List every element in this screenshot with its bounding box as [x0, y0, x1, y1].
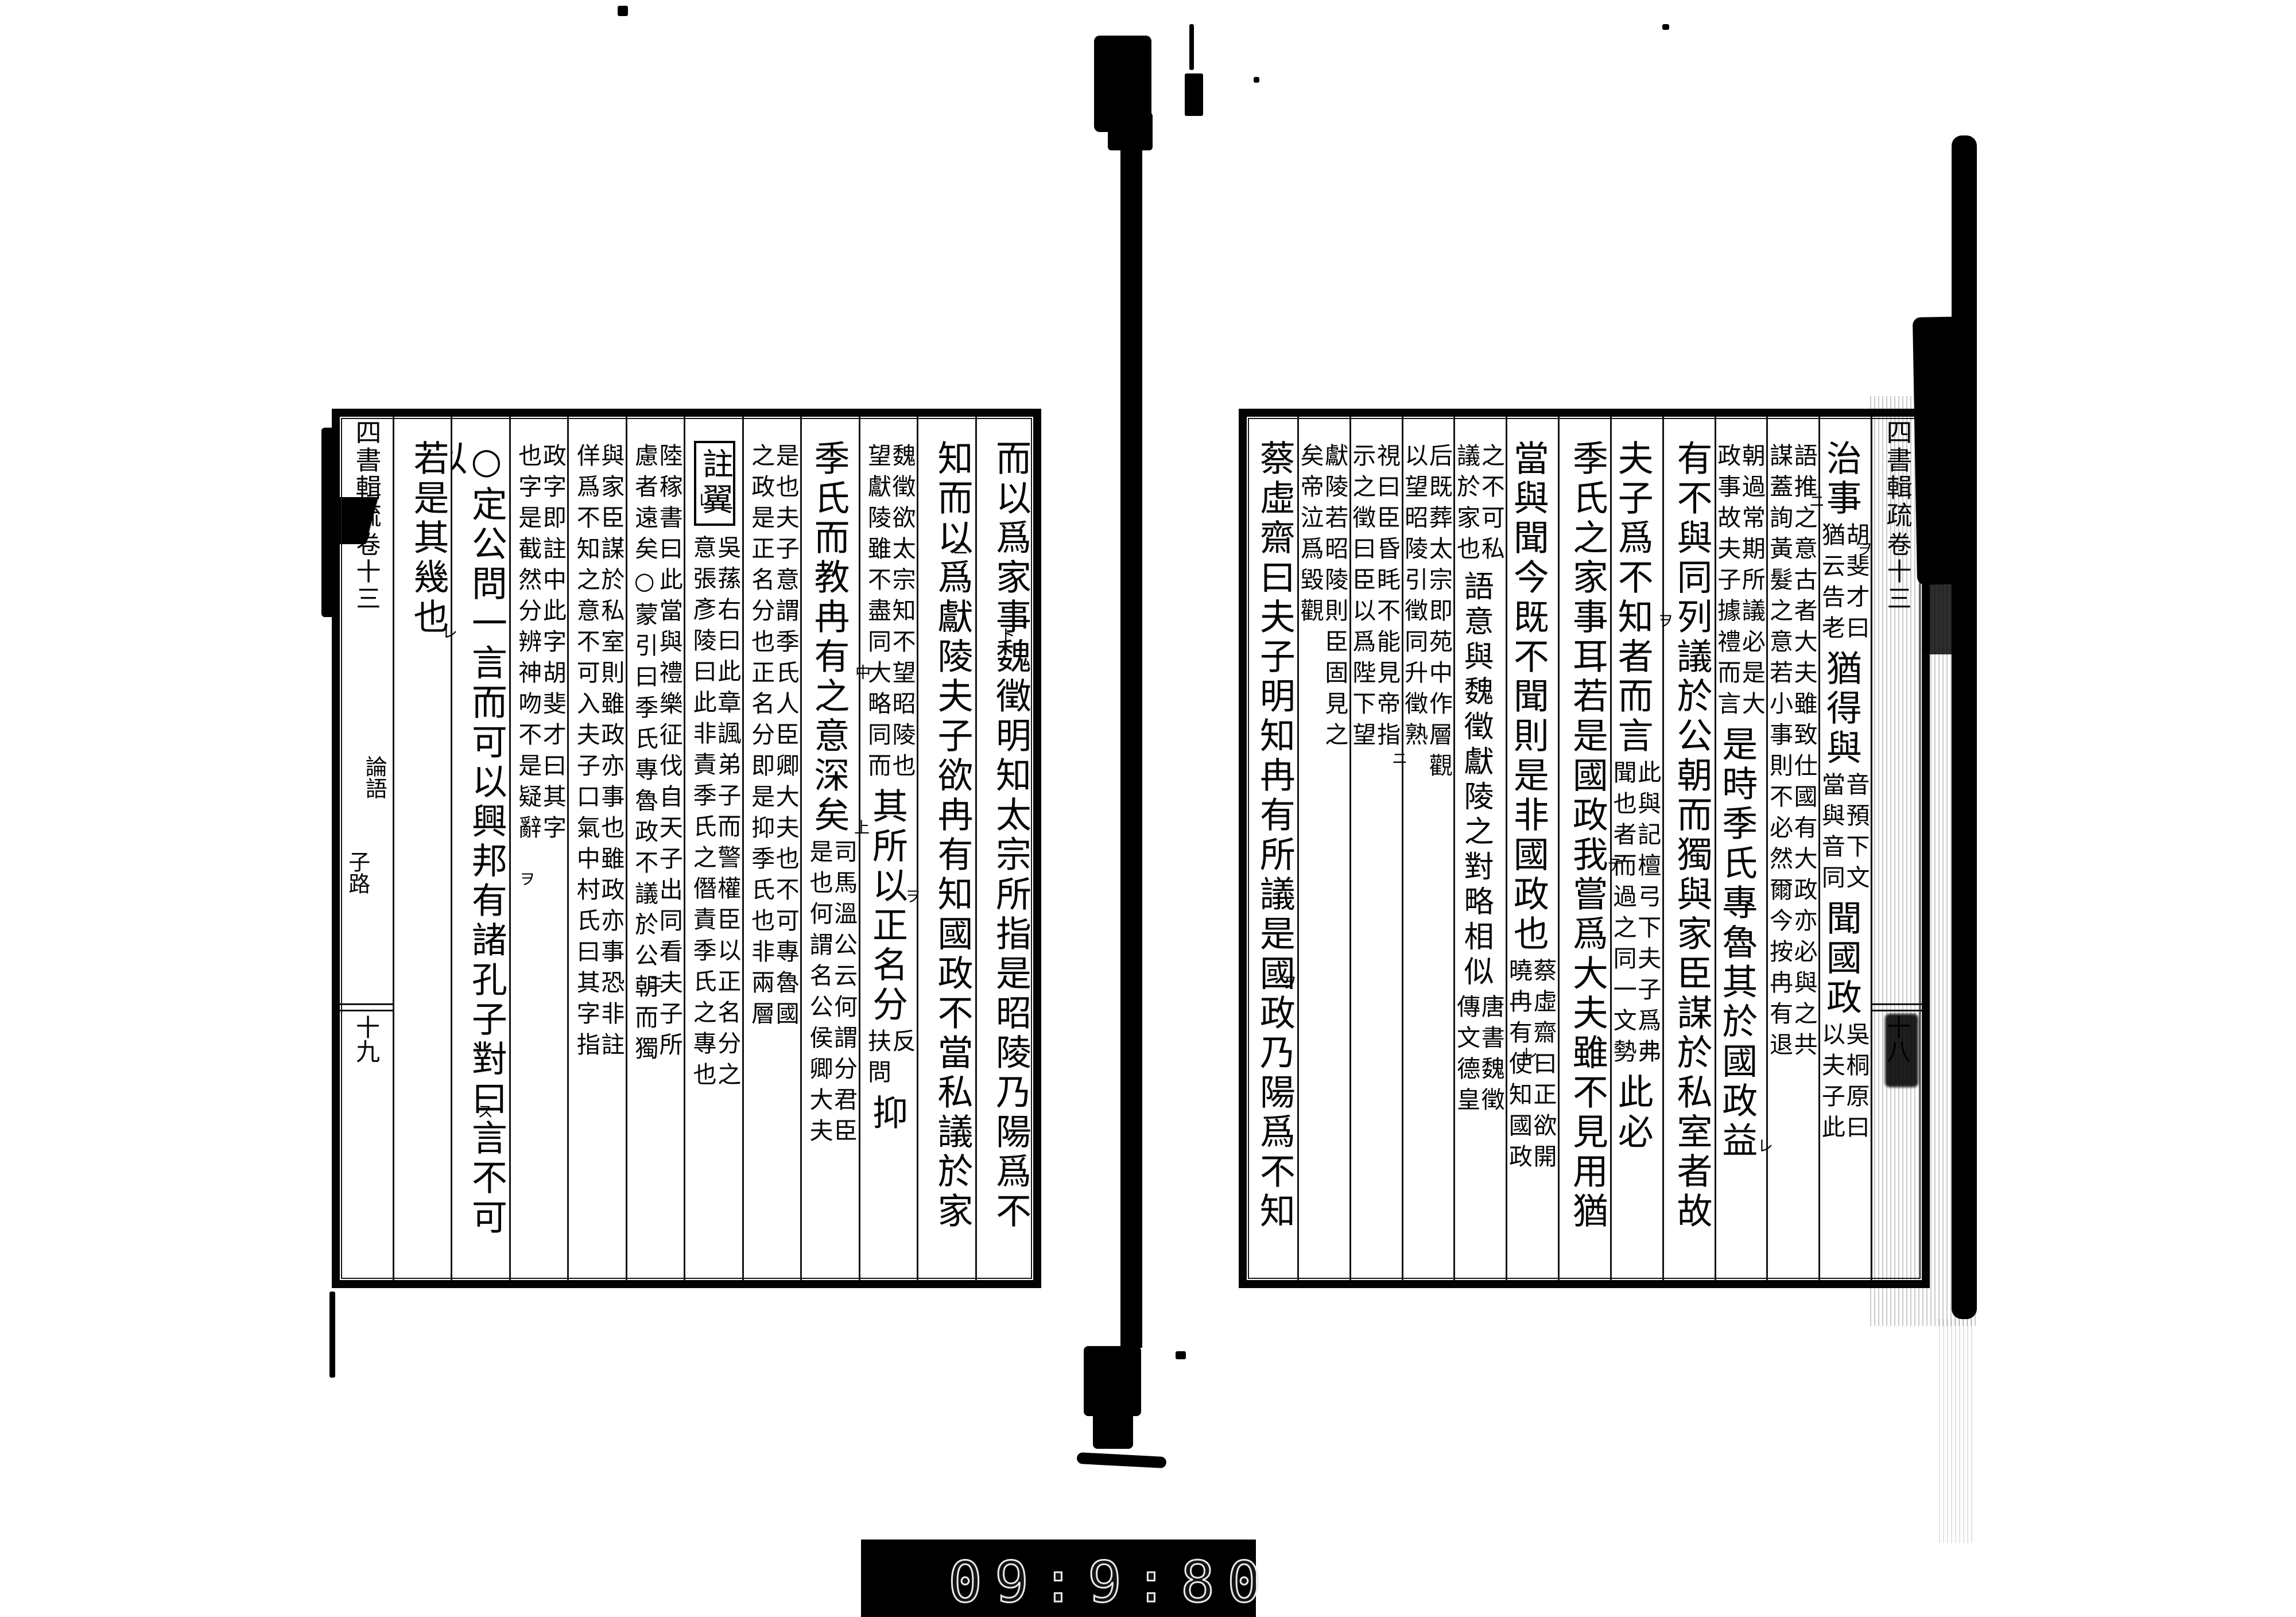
interlinear-note: 此與記檀弓下夫子爲弗聞也者而過之同一文勢	[1610, 760, 1659, 1070]
column-text: 是時季氏專魯其於國政益	[1716, 726, 1758, 1161]
column-text: 季氏而教冉有之意深矣	[808, 440, 850, 836]
interlinear-note: 音預下文當與音同	[1819, 772, 1868, 896]
column-text: 語意與魏徵獻陵之對略相似	[1459, 571, 1493, 991]
text-column: 視曰臣昏眊不能見帝指示之徵曰臣以爲陛下望	[1349, 417, 1402, 1280]
page-right: 治事胡斐才曰猶云告老猶得與音預下文當與音同聞國政吳桐原曰以夫子此語推之意古者大夫…	[1239, 409, 1930, 1288]
column-text: 聞國政	[1820, 899, 1862, 1018]
column-text: 有不與同列議於公朝而獨與家臣謀於私室者故	[1671, 440, 1713, 1232]
kunten-mark: ニ	[1809, 489, 1825, 511]
ink-speck	[1662, 24, 1669, 30]
kunten-mark: レ	[442, 620, 457, 642]
scan-streaks	[1870, 396, 1978, 1326]
page-right-columns: 治事胡斐才曰猶云告老猶得與音預下文當與音同聞國政吳桐原曰以夫子此語推之意古者大夫…	[1247, 417, 1871, 1280]
interlinear-note: 是也夫子意謂季氏人臣卿大夫也不可專魯國之政是正名分也正名分即是抑季氏也非兩層	[748, 443, 797, 1032]
margin-strip-left: 四書輯疏 卷十三 論語 子路 十九	[340, 417, 394, 1280]
page-number-left: 十九	[349, 1015, 384, 1063]
interlinear-note: 司馬溫公云何謂分君臣是也何謂名公侯卿大夫	[806, 839, 855, 1149]
text-column: 后既葬太宗即苑中作層觀以望昭陵引徵同升徵熟	[1402, 417, 1454, 1280]
column-text: 季氏之家事耳若是國政我嘗爲大夫雖不見用猶	[1566, 440, 1608, 1232]
kunten-mark: ニ	[953, 537, 968, 559]
column-text: 其所以正名分	[866, 788, 908, 1025]
interlinear-note: 吳桐原曰以夫子此	[1819, 1022, 1868, 1146]
kunten-mark: テ	[1607, 852, 1623, 875]
chapter-label: 子路	[342, 851, 374, 894]
kunten-mark: ヲ	[1281, 970, 1297, 992]
page-number-rule-left	[340, 1003, 393, 1011]
text-column: 是也夫子意謂季氏人臣卿大夫也不可專魯國之政是正名分也正名分即是抑季氏也非兩層	[742, 417, 800, 1280]
column-text: 當與聞今既不聞則是非國政也	[1507, 440, 1549, 955]
text-column: 陸稼書曰此當與禮樂征伐自天子出同看夫子所慮者遠矣○蒙引曰季氏專魯政不議於公朝而獨	[626, 417, 684, 1280]
interlinear-note: 反扶問	[865, 1029, 914, 1091]
text-column: 而以爲家事魏徵明知太宗所指是昭陵乃陽爲不	[975, 417, 1033, 1280]
column-text: 夫子爲不知者而言	[1612, 440, 1654, 757]
interlinear-note: 與家臣謀於私室則雖政亦事也雖政亦事恐非註佯爲不知之意不可入夫子口氣中村氏曰其字指	[574, 443, 623, 1063]
text-column: 政字即註中此字胡斐才曰其字也字是截然分辨神吻不是疑辭	[509, 417, 567, 1280]
binding-ink-blob-bottom	[1084, 1346, 1141, 1416]
kunten-mark: ヲ	[1658, 608, 1673, 631]
column-text: 猶得與	[1820, 650, 1862, 769]
ink-speck	[618, 6, 628, 16]
kunten-mark: レ	[1758, 1134, 1773, 1156]
ink-speck	[329, 1292, 335, 1378]
text-column: 與家臣謀於私室則雖政亦事也雖政亦事恐非註佯爲不知之意不可入夫子口氣中村氏曰其字指	[567, 417, 625, 1280]
text-column: 夫子爲不知者而言此與記檀弓下夫子爲弗聞也者而過之同一文勢此必	[1610, 417, 1662, 1280]
binding-bar	[1120, 122, 1142, 1348]
ink-speck	[1176, 1351, 1186, 1359]
text-column: 有不與同列議於公朝而獨與家臣謀於私室者故	[1662, 417, 1715, 1280]
kunten-mark: ニ	[1392, 746, 1407, 769]
text-column: 註翼吳蓀右曰此章諷弟子而警權臣以正名分之意張彥陵曰此非責季氏之僭責季氏之專也	[684, 417, 742, 1280]
ink-speck	[1189, 24, 1194, 70]
ink-speck	[1254, 77, 1259, 83]
binding-ink-smear	[1077, 1452, 1167, 1468]
interlinear-note: 獻陵若昭陵則臣固見之矣帝泣爲毀觀	[1297, 443, 1346, 753]
interlinear-note: 之不可私議於家也	[1454, 443, 1503, 567]
kunten-mark: 上	[854, 815, 870, 837]
kunten-mark: 中	[855, 660, 871, 683]
interlinear-note: 語推之意古者大夫雖致仕國有大政亦必與之共謀蓋詢黃髮之意若小事則不必然爾今按冉有退	[1767, 443, 1816, 1063]
column-text: 蔡虛齋曰夫子明知冉有所議是國政乃陽爲不知	[1254, 440, 1296, 1232]
column-text: 而以爲家事魏徵明知太宗所指是昭陵乃陽爲不	[990, 440, 1031, 1232]
interlinear-note: 蔡虛齋曰正欲開曉冉有使知國政	[1506, 958, 1555, 1175]
kunten-mark: ヲ	[905, 884, 921, 906]
interlinear-note: 后既葬太宗即苑中作層觀以望昭陵引徵同升徵熟	[1402, 443, 1450, 784]
kunten-mark: ス	[478, 1099, 493, 1122]
binding-ink-blob-bottom2	[1093, 1411, 1133, 1449]
text-column: 季氏而教冉有之意深矣司馬溫公云何謂分君臣是也何謂名公侯卿大夫	[800, 417, 858, 1280]
column-text: 治事	[1820, 440, 1862, 519]
book-scan-spread: 治事胡斐才曰猶云告老猶得與音預下文當與音同聞國政吳桐原曰以夫子此語推之意古者大夫…	[0, 0, 2296, 1617]
text-column: ○定公問一言而可以興邦有諸孔子對曰言不可以	[451, 417, 509, 1280]
column-text: 此必	[1612, 1073, 1654, 1153]
column-text: 若是其幾也	[407, 440, 449, 638]
text-column: 獻陵若昭陵則臣固見之矣帝泣爲毀觀	[1297, 417, 1349, 1280]
column-text: 抑	[866, 1094, 908, 1134]
page-left: 而以爲家事魏徵明知太宗所指是昭陵乃陽爲不知而以爲獻陵夫子欲冉有知國政不當私議於家…	[332, 409, 1041, 1288]
text-column: 季氏之家事耳若是國政我嘗爲大夫雖不見用猶	[1558, 417, 1610, 1280]
microfilm-frame-counter: 09:9:80	[948, 1550, 1274, 1615]
interlinear-note: 政字即註中此字胡斐才曰其字也字是截然分辨神吻不是疑辭	[515, 443, 564, 846]
kunten-mark: ニ	[649, 970, 664, 992]
text-column: 當與聞今既不聞則是非國政也蔡虛齋曰正欲開曉冉有使知國政	[1506, 417, 1558, 1280]
text-column: 蔡虛齋曰夫子明知冉有所議是國政乃陽爲不知	[1247, 417, 1297, 1280]
kunten-mark: レ	[697, 488, 713, 510]
volume-label-left: 卷十三	[348, 532, 384, 612]
interlinear-note: 吳蓀右曰此章諷弟子而警權臣以正名分之意張彥陵曰此非責季氏之僭責季氏之專也	[690, 535, 739, 1093]
section-header-box: 註翼	[694, 441, 735, 526]
page-left-columns: 而以爲家事魏徵明知太宗所指是昭陵乃陽爲不知而以爲獻陵夫子欲冉有知國政不當私議於家…	[394, 417, 1033, 1280]
subject-label: 論語	[359, 755, 390, 799]
text-column: 若是其幾也	[394, 417, 451, 1280]
interlinear-note: 視曰臣昏眊不能見帝指示之徵曰臣以爲陛下望	[1349, 443, 1398, 753]
kunten-mark: ト	[1000, 623, 1015, 645]
scan-streaks-lower	[1939, 1319, 1975, 1543]
interlinear-note: 唐書魏徵傳文德皇	[1454, 994, 1503, 1118]
kunten-mark: ヲ	[1857, 537, 1872, 559]
interlinear-note: 魏徵欲太宗知不望昭陵也望獻陵雖不盡同大略同而	[865, 443, 914, 784]
text-column: 魏徵欲太宗知不望昭陵也望獻陵雖不盡同大略同而其所以正名分反扶問抑	[859, 417, 917, 1280]
left-edge-ink-blob	[321, 428, 338, 617]
ink-speck	[1185, 73, 1203, 116]
text-column: 之不可私議於家也語意與魏徵獻陵之對略相似唐書魏徵傳文德皇	[1453, 417, 1506, 1280]
kunten-mark: ヲ	[519, 867, 535, 889]
kunten-mark: レ	[1522, 1042, 1538, 1064]
text-column: 語推之意古者大夫雖致仕國有大政亦必與之共謀蓋詢黃髮之意若小事則不必然爾今按冉有退	[1766, 417, 1818, 1280]
interlinear-note: 朝過常期所議必是大政事故夫子據禮而言	[1715, 443, 1763, 722]
